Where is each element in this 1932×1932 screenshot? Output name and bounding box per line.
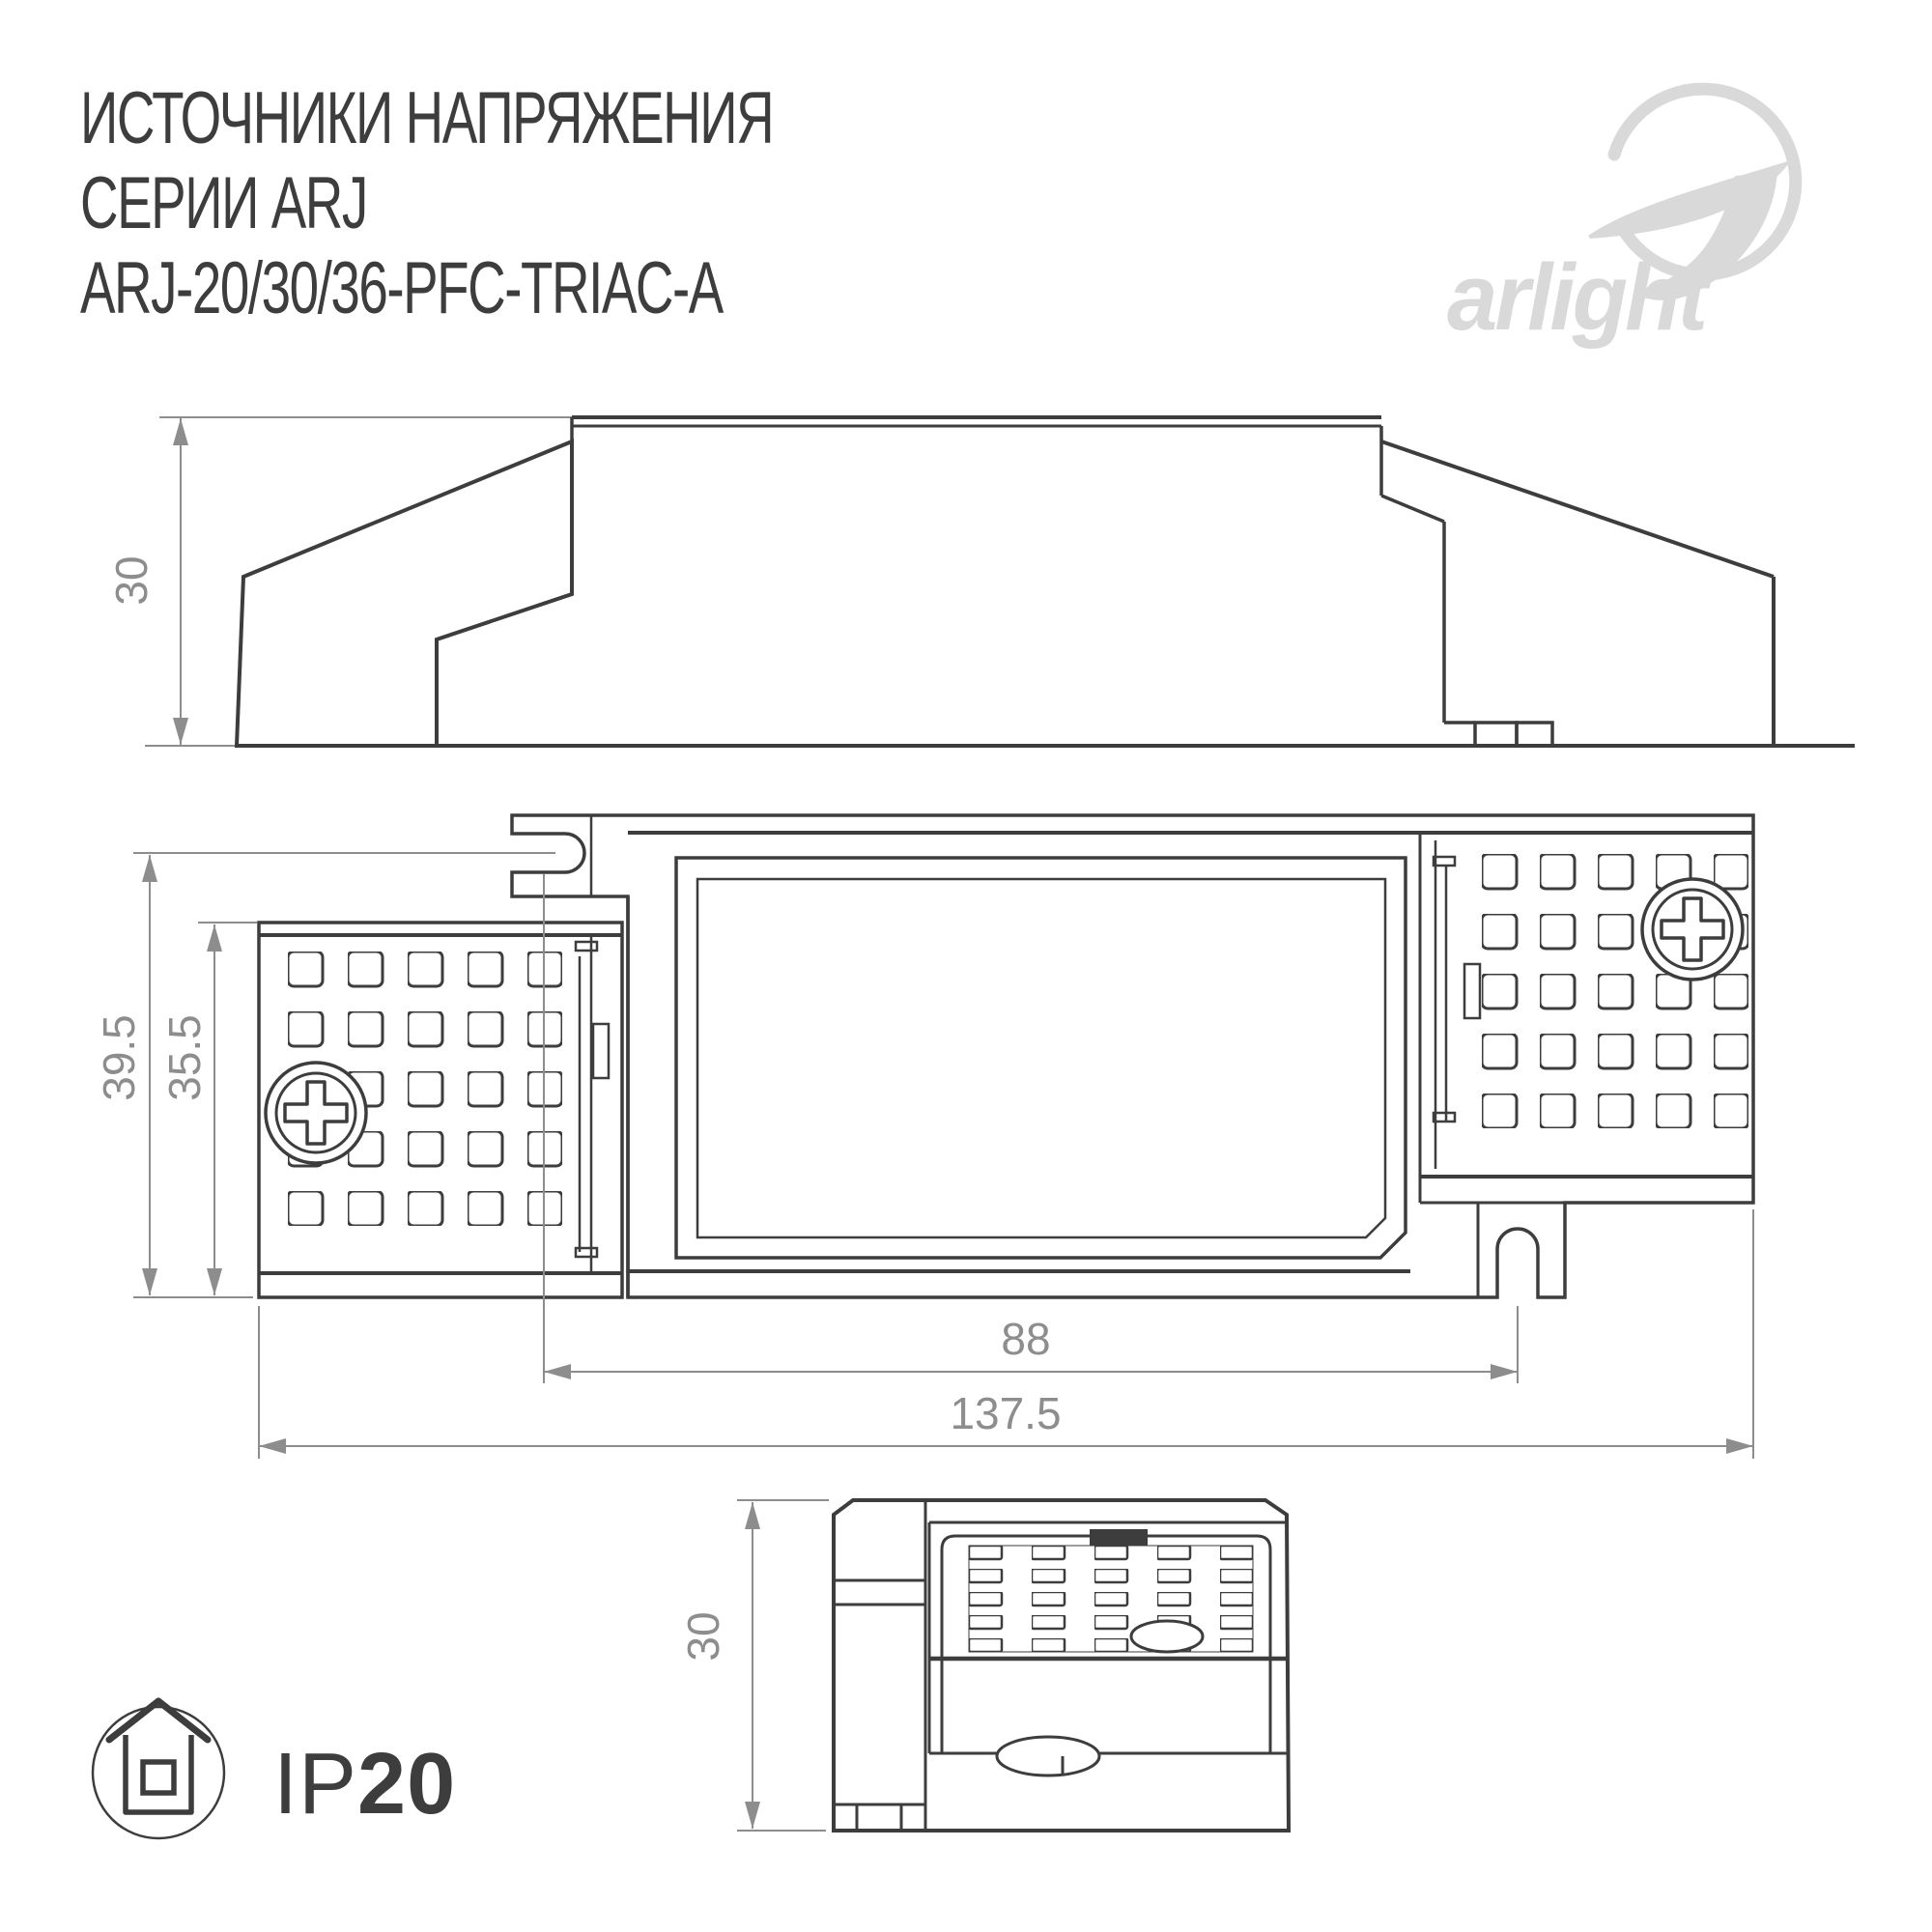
- dimension-label: 88: [1001, 1314, 1050, 1364]
- end-view: [834, 1500, 1289, 1831]
- dimension-label: 30: [678, 1611, 728, 1661]
- ip-rating: IP20: [273, 1735, 456, 1834]
- indoor-use-icon: [93, 1701, 224, 1838]
- knockout-oval: [997, 1737, 1099, 1776]
- ip-rating-prefix: IP: [273, 1736, 357, 1833]
- ip-rating-value: 20: [357, 1736, 456, 1833]
- end-view-height-dimension: 30: [678, 1500, 829, 1831]
- ip-rating-block: [0, 0, 483, 1932]
- datasheet-page: ИСТОЧНИКИ НАПРЯЖЕНИЯ СЕРИИ ARJ ARJ-20/30…: [0, 0, 1932, 1932]
- dimension-label: 137.5: [950, 1388, 1061, 1438]
- end-vent-grid: [969, 1546, 1253, 1652]
- plan-view: [259, 815, 1753, 1297]
- knockout-oval: [1131, 1621, 1203, 1652]
- connector-slot: [1090, 1529, 1148, 1546]
